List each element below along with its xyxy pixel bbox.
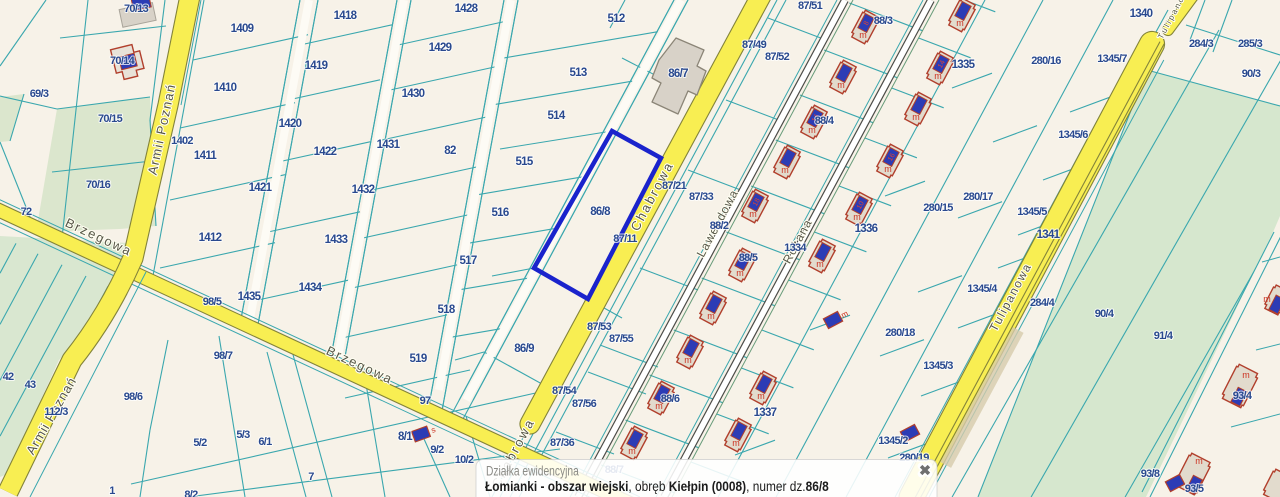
svg-text:Działka ewidencyjna: Działka ewidencyjna (486, 463, 579, 479)
svg-text:m: m (736, 268, 744, 278)
svg-text:86/8: 86/8 (590, 206, 611, 218)
svg-text:m: m (884, 164, 892, 174)
svg-text:m: m (934, 71, 942, 81)
svg-text:m: m (781, 165, 789, 175)
svg-text:1335: 1335 (952, 59, 976, 71)
svg-text:87/51: 87/51 (798, 0, 823, 12)
svg-text:5/3: 5/3 (236, 429, 250, 441)
svg-text:93/8: 93/8 (1141, 468, 1160, 480)
svg-text:1334: 1334 (784, 242, 807, 254)
svg-text:1340: 1340 (1130, 8, 1153, 20)
svg-text:8/2: 8/2 (184, 489, 198, 497)
svg-text:88/6: 88/6 (661, 393, 680, 405)
svg-text:7: 7 (308, 471, 314, 483)
svg-text:87/54: 87/54 (552, 385, 578, 397)
svg-text:87/33: 87/33 (689, 191, 714, 203)
svg-text:87/53: 87/53 (587, 321, 612, 333)
svg-text:280/15: 280/15 (923, 202, 953, 214)
svg-text:1411: 1411 (194, 150, 217, 162)
svg-text:86/7: 86/7 (668, 68, 688, 80)
svg-text:m: m (853, 212, 861, 222)
svg-text:6/1: 6/1 (258, 436, 272, 448)
svg-text:1345/3: 1345/3 (923, 360, 953, 372)
svg-text:82: 82 (444, 145, 456, 157)
svg-text:516: 516 (491, 207, 508, 219)
svg-text:1345/5: 1345/5 (1017, 206, 1047, 218)
svg-text:m: m (859, 30, 867, 40)
svg-text:88/5: 88/5 (739, 252, 758, 264)
svg-text:1432: 1432 (352, 184, 375, 196)
svg-text:280/16: 280/16 (1031, 55, 1061, 67)
svg-text:m: m (757, 391, 765, 401)
svg-text:70/16: 70/16 (86, 179, 111, 191)
svg-text:1345/6: 1345/6 (1058, 129, 1088, 141)
svg-text:70/13: 70/13 (124, 3, 149, 15)
svg-text:m: m (837, 80, 845, 90)
svg-text:512: 512 (607, 13, 624, 25)
svg-text:280/18: 280/18 (885, 327, 915, 339)
svg-text:280/17: 280/17 (963, 191, 993, 203)
svg-text:518: 518 (437, 304, 455, 316)
svg-text:87/55: 87/55 (609, 333, 634, 345)
svg-text:5/2: 5/2 (193, 437, 207, 449)
svg-text:88/3: 88/3 (874, 15, 893, 27)
svg-text:1345/2: 1345/2 (878, 435, 908, 447)
svg-text:90/3: 90/3 (1242, 68, 1261, 80)
svg-text:m: m (816, 259, 824, 269)
svg-text:285/3: 285/3 (1238, 38, 1263, 50)
svg-text:70/15: 70/15 (98, 113, 123, 125)
svg-text:1410: 1410 (214, 82, 237, 94)
svg-text:87/52: 87/52 (765, 51, 790, 63)
svg-text:Łomianki - obszar wiejski, obr: Łomianki - obszar wiejski, obręb Kiełpin… (485, 478, 829, 494)
svg-text:87/56: 87/56 (572, 398, 597, 410)
svg-text:93/4: 93/4 (1233, 390, 1253, 402)
svg-text:86/9: 86/9 (514, 343, 534, 355)
svg-text:1429: 1429 (429, 42, 452, 54)
svg-text:98/7: 98/7 (214, 350, 233, 362)
svg-text:1419: 1419 (305, 60, 328, 72)
svg-text:43: 43 (25, 379, 36, 391)
svg-text:70/14: 70/14 (110, 55, 136, 67)
svg-text:284/4: 284/4 (1030, 297, 1056, 309)
svg-text:m: m (1242, 370, 1250, 380)
svg-text:1422: 1422 (314, 146, 337, 158)
svg-text:513: 513 (569, 67, 586, 79)
svg-text:98/6: 98/6 (124, 391, 143, 403)
svg-text:69/3: 69/3 (30, 88, 49, 100)
svg-text:1409: 1409 (231, 23, 254, 35)
svg-text:1431: 1431 (377, 139, 401, 151)
svg-text:m: m (628, 446, 636, 456)
svg-text:m: m (956, 18, 964, 28)
svg-text:91/4: 91/4 (1154, 330, 1174, 342)
svg-text:1345/7: 1345/7 (1097, 53, 1127, 65)
svg-text:9/2: 9/2 (430, 444, 444, 456)
svg-text:97: 97 (420, 395, 431, 407)
svg-text:10/2: 10/2 (455, 454, 474, 466)
svg-text:8/1: 8/1 (398, 431, 413, 443)
svg-text:m: m (1263, 294, 1271, 304)
svg-text:1341: 1341 (1037, 229, 1061, 241)
svg-text:1345/4: 1345/4 (967, 283, 998, 295)
svg-text:284/3: 284/3 (1189, 38, 1214, 50)
svg-text:1428: 1428 (455, 3, 479, 15)
svg-text:90/4: 90/4 (1095, 308, 1115, 320)
svg-text:88/2: 88/2 (710, 220, 729, 232)
svg-text:514: 514 (547, 110, 565, 122)
svg-text:88/4: 88/4 (815, 115, 835, 127)
svg-text:98/5: 98/5 (203, 296, 222, 308)
svg-text:1430: 1430 (402, 88, 425, 100)
svg-text:1420: 1420 (279, 118, 302, 130)
svg-text:515: 515 (515, 156, 533, 168)
svg-text:1433: 1433 (325, 234, 348, 246)
svg-text:42: 42 (3, 371, 14, 383)
svg-text:87/21: 87/21 (662, 180, 687, 192)
svg-text:1336: 1336 (855, 223, 878, 235)
svg-text:1418: 1418 (334, 10, 358, 22)
svg-text:112/3: 112/3 (44, 406, 68, 418)
svg-text:87/11: 87/11 (613, 233, 637, 245)
svg-text:m: m (707, 311, 715, 321)
svg-text:m: m (732, 438, 740, 448)
svg-text:519: 519 (409, 353, 426, 365)
svg-text:m: m (684, 355, 692, 365)
svg-text:1421: 1421 (249, 182, 273, 194)
svg-text:517: 517 (459, 255, 476, 267)
svg-text:87/49: 87/49 (742, 39, 767, 51)
svg-text:1: 1 (109, 485, 115, 497)
svg-text:1434: 1434 (299, 282, 323, 294)
svg-text:72: 72 (21, 206, 32, 218)
svg-text:m: m (749, 209, 757, 219)
svg-text:1435: 1435 (238, 291, 262, 303)
svg-text:m: m (1195, 456, 1203, 466)
svg-text:1412: 1412 (199, 232, 222, 244)
svg-text:m: m (912, 112, 920, 122)
svg-text:93/5: 93/5 (1185, 483, 1204, 495)
svg-text:87/36: 87/36 (550, 437, 575, 449)
svg-text:1337: 1337 (754, 407, 777, 419)
svg-text:1402: 1402 (171, 135, 193, 147)
